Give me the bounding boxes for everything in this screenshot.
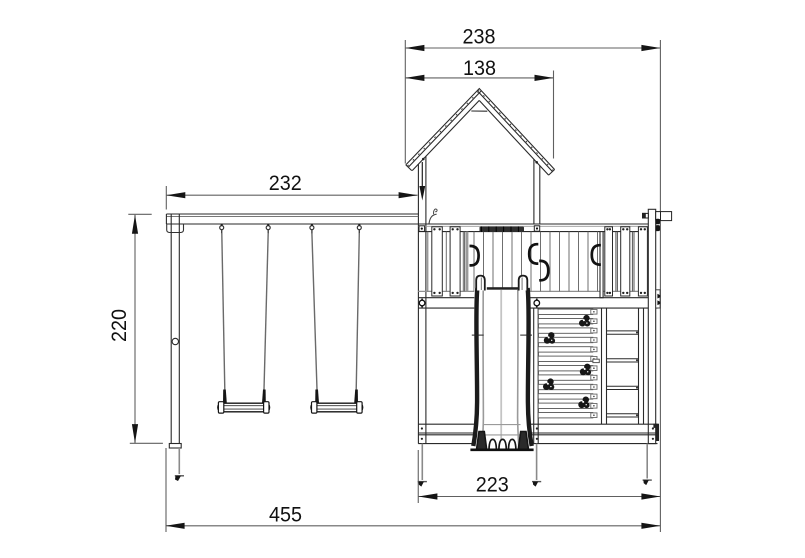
svg-text:232: 232 bbox=[269, 171, 302, 195]
svg-text:220: 220 bbox=[107, 309, 131, 342]
svg-text:223: 223 bbox=[476, 473, 509, 497]
svg-text:138: 138 bbox=[463, 56, 496, 80]
svg-text:238: 238 bbox=[463, 24, 496, 48]
svg-text:455: 455 bbox=[269, 503, 302, 527]
